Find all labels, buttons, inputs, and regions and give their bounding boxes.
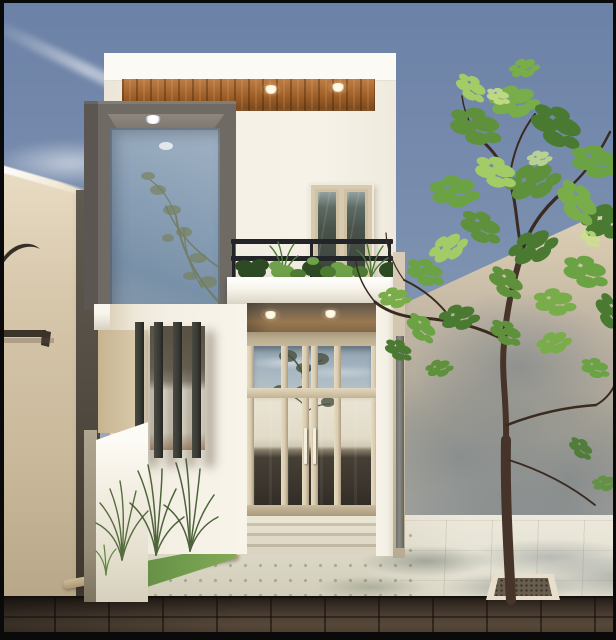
ornamental-grass — [92, 425, 244, 590]
frame-border-top — [0, 0, 616, 3]
architectural-render-scene — [0, 0, 616, 640]
frame-border-left — [0, 0, 4, 640]
roof-silhouette — [0, 244, 40, 269]
frame-downlight — [144, 115, 162, 124]
door-stile — [247, 346, 254, 512]
leaf-clusters — [377, 53, 616, 495]
road-joint-line — [0, 616, 616, 618]
left-wall-silhouettes — [0, 235, 62, 355]
street-tree — [290, 40, 616, 610]
door-mullion — [281, 346, 288, 512]
downlight-reflection — [159, 142, 173, 150]
soffit-downlight — [263, 85, 279, 94]
railing-silhouette — [0, 330, 46, 337]
railing-shadow — [2, 338, 54, 343]
tree-trunk — [503, 252, 522, 600]
frame-border-bottom — [0, 632, 616, 640]
glass-tree-reflection — [110, 128, 220, 310]
porch-downlight — [263, 311, 278, 319]
corner-glass-panel — [110, 128, 220, 310]
